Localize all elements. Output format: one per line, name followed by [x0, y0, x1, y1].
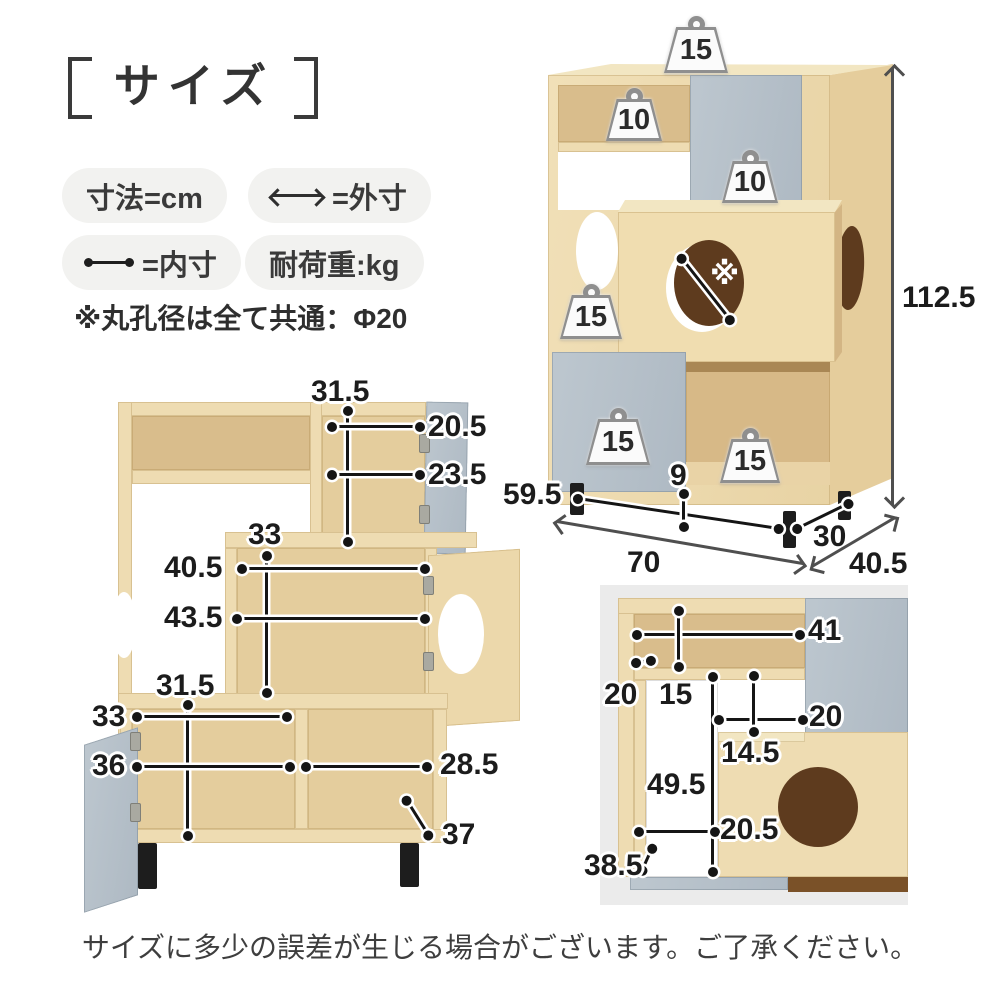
legend-pill-load: 耐荷重:kg — [245, 235, 424, 290]
iso-lower-cube-shadow — [686, 362, 830, 372]
dim-label-height: 112.5 — [902, 283, 975, 313]
measure-line — [332, 425, 420, 428]
measure-line — [265, 556, 268, 693]
detail-open-gap — [718, 680, 805, 732]
front-upper-shelf — [132, 470, 320, 484]
front-lower-left-interior — [132, 709, 295, 829]
measure-line — [639, 830, 715, 833]
measure-line — [186, 705, 189, 836]
measure-line — [677, 611, 680, 667]
weight-icon: 10 — [606, 88, 662, 141]
front-upper-divider — [310, 402, 322, 534]
measure-line — [752, 676, 755, 732]
outer-dimension-arrow-icon — [272, 194, 322, 197]
dim-label: 49.5 — [647, 770, 705, 800]
dim-label: 37 — [442, 820, 475, 850]
detail-bottom-dark-strip — [788, 877, 908, 892]
front-door-hole — [438, 594, 484, 674]
legend-pill-outer: =外寸 — [248, 168, 431, 223]
front-leg — [138, 843, 157, 889]
legend-pill-inner: =内寸 — [62, 235, 241, 290]
weight-value: 10 — [618, 106, 650, 135]
dim-label-leg-height: 9 — [670, 461, 687, 491]
detail-left-frame — [618, 598, 634, 877]
measure-line — [237, 617, 425, 620]
height-arrow — [891, 68, 894, 505]
dim-label: 43.5 — [164, 603, 222, 633]
weight-icon: 15 — [664, 16, 728, 73]
dim-label-outer-width: 70 — [627, 548, 660, 578]
dim-label: 36 — [92, 751, 125, 781]
door-hinge — [130, 803, 141, 822]
dim-label: 28.5 — [440, 750, 498, 780]
dim-label: 20.5 — [428, 412, 486, 442]
iso-left-hole — [576, 212, 618, 290]
front-left-side-hole — [112, 592, 136, 658]
dim-label: 33 — [248, 520, 281, 550]
detail-bottom-gray-strip — [630, 877, 788, 890]
dim-label: 40.5 — [164, 553, 222, 583]
weight-icon: 15 — [586, 408, 650, 465]
iso-upper-shelf-board — [558, 142, 690, 152]
detail-cube-hole — [778, 767, 858, 847]
front-upper-interior — [132, 416, 310, 470]
dim-label: 31.5 — [311, 377, 369, 407]
measure-line — [242, 567, 425, 570]
door-hinge — [423, 652, 434, 671]
detail-shelf-interior — [634, 614, 805, 668]
legend-outer-label: =外寸 — [332, 175, 407, 217]
dim-label: 31.5 — [156, 671, 214, 701]
inner-dimension-line-icon — [86, 261, 132, 264]
legend-load-label: 耐荷重:kg — [269, 242, 400, 284]
dim-label: 20 — [809, 702, 842, 732]
dim-label: 20 — [604, 680, 637, 710]
weight-value: 15 — [602, 428, 634, 457]
dim-label: 33 — [92, 702, 125, 732]
measure-line — [719, 718, 803, 721]
front-leg — [400, 843, 419, 887]
door-hinge — [130, 732, 141, 751]
hole-reference-mark: ※ — [710, 260, 739, 290]
measure-line — [711, 677, 714, 872]
measure-line — [346, 411, 349, 542]
measure-line — [637, 633, 800, 636]
weight-icon: 15 — [560, 284, 622, 339]
size-diagram-page: サイズ 寸法=cm =外寸 =内寸 耐荷重:kg ※丸孔径は全て共通：Φ20 ※ — [0, 0, 1000, 1000]
page-title: サイズ — [70, 63, 318, 109]
measure-line — [332, 473, 420, 476]
weight-value: 15 — [575, 303, 607, 332]
weight-value: 10 — [734, 168, 766, 197]
legend-pill-unit: 寸法=cm — [62, 168, 227, 223]
legend-unit-label: 寸法=cm — [86, 175, 203, 217]
leg-height-measure-line — [682, 494, 685, 527]
dim-label: 38.5 — [584, 851, 642, 881]
hole-diameter-note: ※丸孔径は全て共通：Φ20 — [74, 302, 407, 336]
footer-note: サイズに多少の誤差が生じる場合がございます。ご了承ください。 — [0, 926, 1000, 966]
front-bottom-board — [118, 829, 447, 843]
weight-icon: 10 — [722, 150, 778, 203]
dim-label: 14.5 — [721, 738, 779, 768]
weight-icon: 15 — [720, 428, 780, 483]
detail-top-board — [618, 598, 808, 614]
measure-line — [137, 765, 290, 768]
weight-value: 15 — [680, 36, 712, 65]
dim-label: 20.5 — [720, 815, 778, 845]
iso-cube-side-face — [835, 204, 842, 362]
front-top-board — [118, 402, 430, 416]
dim-label-outer-depth: 40.5 — [849, 549, 907, 579]
measure-line — [137, 715, 287, 718]
door-hinge — [419, 505, 430, 524]
measure-line — [306, 765, 427, 768]
dim-label: 23.5 — [428, 460, 486, 490]
dim-label: 41 — [808, 616, 841, 646]
door-hinge — [423, 576, 434, 595]
legend-inner-label: =内寸 — [142, 242, 217, 284]
dim-label-inner-width: 59.5 — [503, 480, 561, 510]
dim-label: 15 — [659, 680, 692, 710]
weight-value: 15 — [734, 447, 766, 476]
